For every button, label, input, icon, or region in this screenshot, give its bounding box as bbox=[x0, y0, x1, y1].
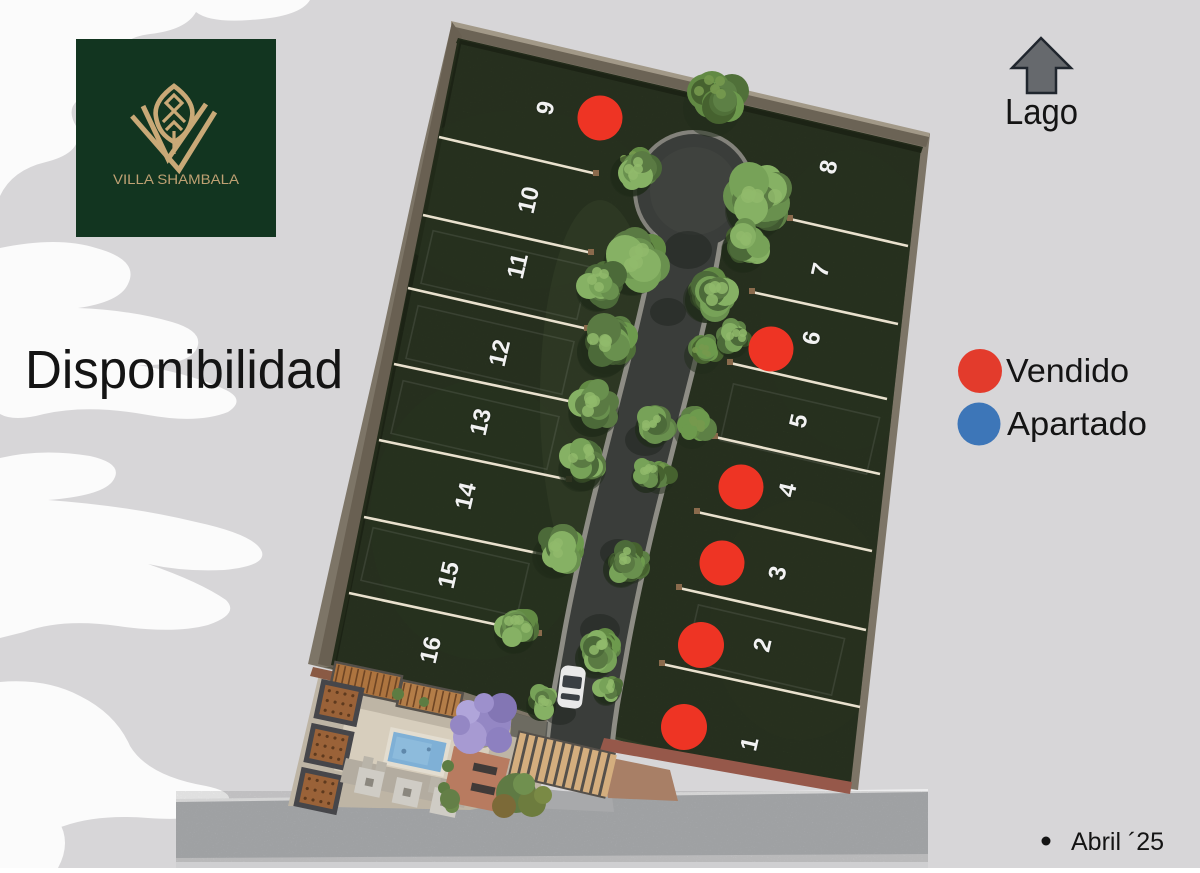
svg-text:Apartado: Apartado bbox=[1007, 405, 1147, 442]
svg-text:Vendido: Vendido bbox=[1006, 352, 1129, 389]
svg-text:Disponibilidad: Disponibilidad bbox=[25, 340, 343, 400]
svg-text:Abril ´25: Abril ´25 bbox=[1071, 828, 1164, 856]
svg-text:Lago: Lago bbox=[1005, 91, 1078, 132]
svg-text:VILLA SHAMBALA: VILLA SHAMBALA bbox=[113, 172, 239, 187]
